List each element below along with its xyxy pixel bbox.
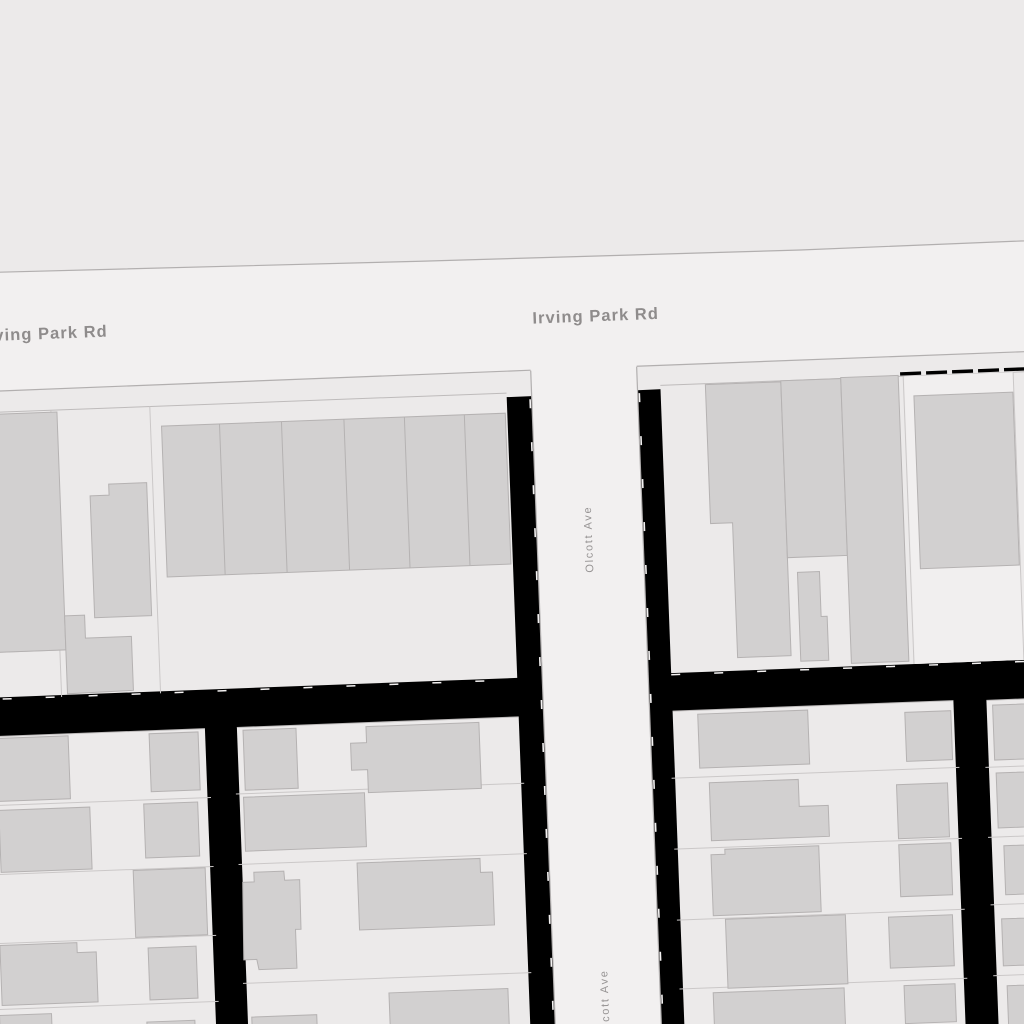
svg-text:Olcott Ave: Olcott Ave xyxy=(582,505,597,572)
